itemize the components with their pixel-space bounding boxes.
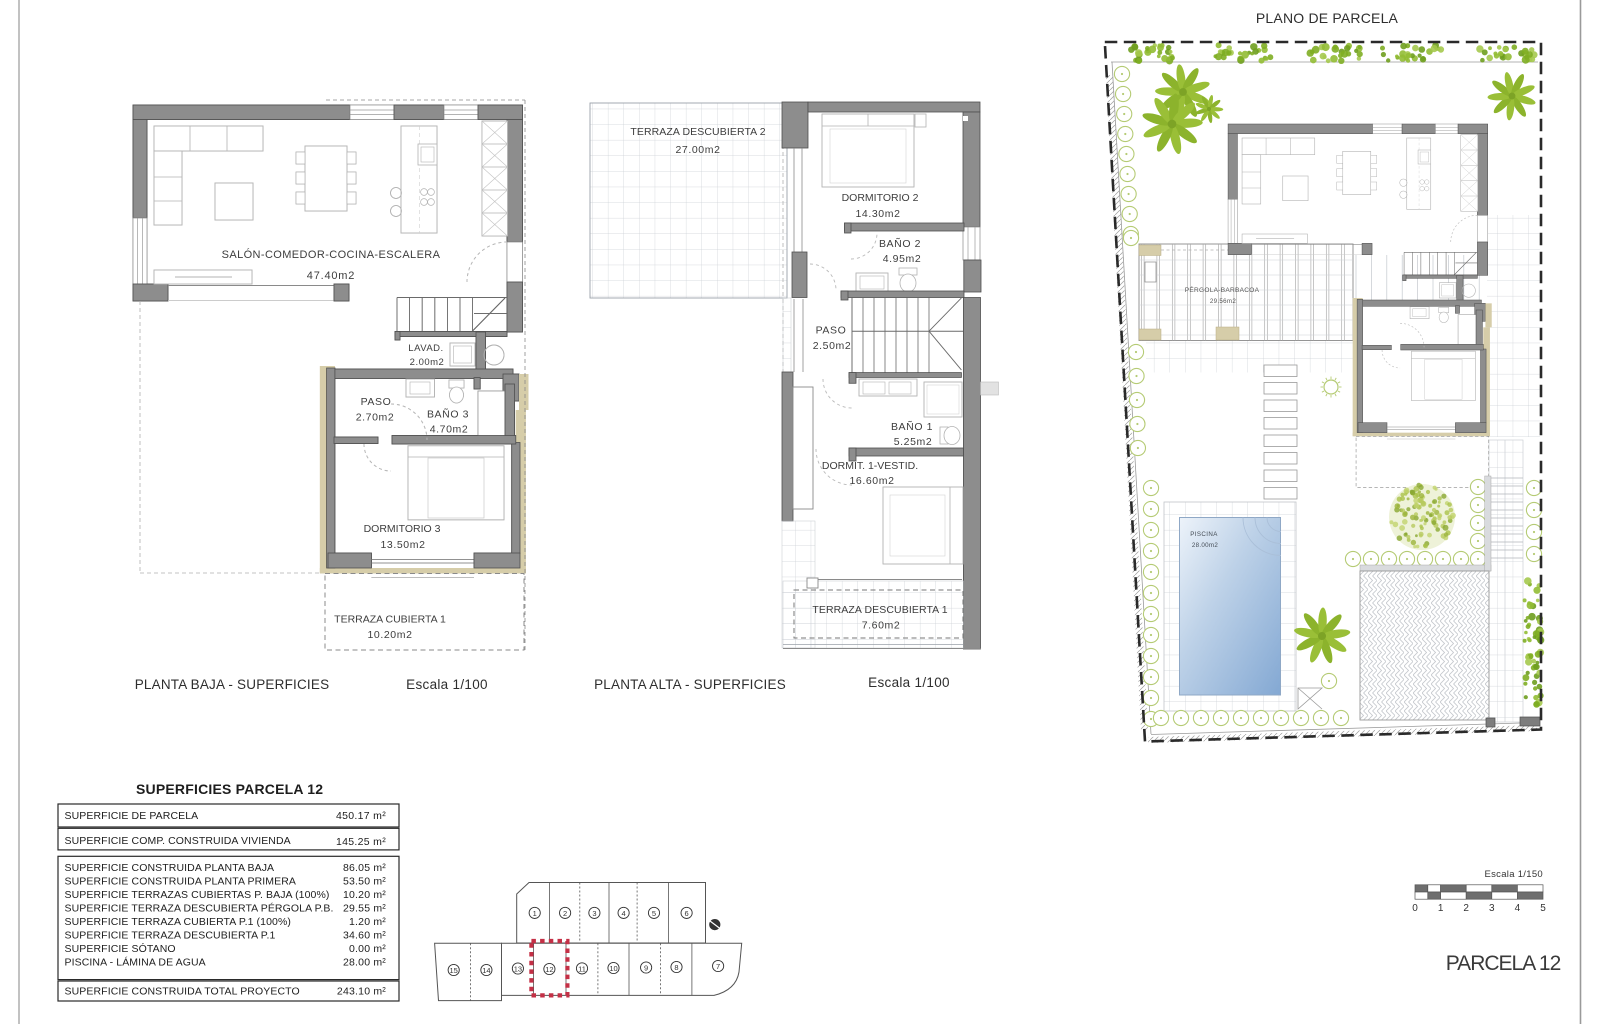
svg-text:PASO: PASO <box>361 396 392 408</box>
svg-text:SUPERFICIE CONSTRUIDA PLANTA B: SUPERFICIE CONSTRUIDA PLANTA BAJA <box>65 862 275 874</box>
svg-text:7: 7 <box>716 962 720 971</box>
svg-text:5: 5 <box>652 909 656 918</box>
svg-text:SUPERFICIE CONSTRUIDA TOTAL PR: SUPERFICIE CONSTRUIDA TOTAL PROYECTO <box>65 986 300 998</box>
svg-text:BAÑO 1: BAÑO 1 <box>891 420 933 433</box>
svg-text:2: 2 <box>563 909 567 918</box>
svg-text:2: 2 <box>1463 903 1469 914</box>
svg-text:1: 1 <box>533 909 537 918</box>
svg-text:SUPERFICIE TERRAZA DESCUBIERTA: SUPERFICIE TERRAZA DESCUBIERTA P.1 <box>65 930 276 942</box>
svg-text:0.00 m²: 0.00 m² <box>349 943 386 955</box>
svg-text:243.10 m²: 243.10 m² <box>337 986 386 998</box>
svg-text:PISCINA: PISCINA <box>1190 531 1218 538</box>
svg-text:DORMITORIO 2: DORMITORIO 2 <box>842 192 919 204</box>
svg-text:145.25 m²: 145.25 m² <box>336 836 386 848</box>
svg-text:10.20 m²: 10.20 m² <box>343 889 386 901</box>
svg-text:28.00 m²: 28.00 m² <box>343 957 386 969</box>
svg-text:SUPERFICIE TERRAZA CUBIERTA P.: SUPERFICIE TERRAZA CUBIERTA P.1 (100%) <box>65 916 292 928</box>
svg-text:86.05 m²: 86.05 m² <box>343 862 386 874</box>
svg-text:1.20 m²: 1.20 m² <box>349 916 386 928</box>
svg-text:4.95m2: 4.95m2 <box>883 253 922 265</box>
svg-text:0: 0 <box>1412 903 1418 914</box>
svg-text:BAÑO 2: BAÑO 2 <box>879 237 921 250</box>
svg-text:PISCINA - LÁMINA DE AGUA: PISCINA - LÁMINA DE AGUA <box>65 956 206 969</box>
svg-text:2.50m2: 2.50m2 <box>813 340 852 352</box>
svg-text:SUPERFICIE DE PARCELA: SUPERFICIE DE PARCELA <box>65 810 199 822</box>
svg-text:6: 6 <box>685 909 689 918</box>
svg-text:7.60m2: 7.60m2 <box>862 620 901 632</box>
svg-text:BAÑO 3: BAÑO 3 <box>427 408 469 421</box>
svg-text:11: 11 <box>578 964 586 973</box>
svg-text:8: 8 <box>674 963 678 972</box>
svg-text:PÉRGOLA-BARBACOA: PÉRGOLA-BARBACOA <box>1185 285 1260 294</box>
svg-text:SUPERFICIES PARCELA 12: SUPERFICIES PARCELA 12 <box>136 781 323 797</box>
svg-text:PLANTA ALTA - SUPERFICIES: PLANTA ALTA - SUPERFICIES <box>594 677 786 692</box>
svg-text:SALÓN-COMEDOR-COCINA-ESCALERA: SALÓN-COMEDOR-COCINA-ESCALERA <box>222 248 441 261</box>
svg-text:28.00m2: 28.00m2 <box>1192 542 1218 549</box>
svg-text:13.50m2: 13.50m2 <box>380 539 425 551</box>
svg-text:3: 3 <box>1489 903 1495 914</box>
svg-text:14: 14 <box>482 966 490 975</box>
svg-text:53.50 m²: 53.50 m² <box>343 876 386 888</box>
svg-text:5.25m2: 5.25m2 <box>894 436 933 448</box>
svg-text:5: 5 <box>1540 903 1546 914</box>
svg-text:3: 3 <box>592 909 596 918</box>
svg-text:4.70m2: 4.70m2 <box>430 424 469 436</box>
svg-text:47.40m2: 47.40m2 <box>307 270 355 282</box>
svg-text:PLANO DE PARCELA: PLANO DE PARCELA <box>1256 10 1399 26</box>
svg-text:TERRAZA DESCUBIERTA 1: TERRAZA DESCUBIERTA 1 <box>812 604 947 616</box>
svg-text:2.00m2: 2.00m2 <box>410 357 445 368</box>
svg-text:29.55 m²: 29.55 m² <box>343 903 386 915</box>
svg-text:9: 9 <box>644 964 648 973</box>
svg-text:13: 13 <box>514 965 522 974</box>
svg-text:PASO: PASO <box>816 325 847 337</box>
svg-text:TERRAZA DESCUBIERTA 2: TERRAZA DESCUBIERTA 2 <box>630 126 765 138</box>
svg-text:4: 4 <box>622 909 626 918</box>
svg-text:27.00m2: 27.00m2 <box>675 144 720 156</box>
svg-text:4: 4 <box>1515 903 1521 914</box>
svg-text:14.30m2: 14.30m2 <box>855 208 900 220</box>
svg-text:DORMIT. 1-VESTID.: DORMIT. 1-VESTID. <box>822 460 918 472</box>
svg-text:10.20m2: 10.20m2 <box>367 629 412 641</box>
svg-text:16.60m2: 16.60m2 <box>849 475 894 487</box>
svg-text:SUPERFICIE CONSTRUIDA PLANTA P: SUPERFICIE CONSTRUIDA PLANTA PRIMERA <box>65 876 297 888</box>
svg-text:PLANTA BAJA - SUPERFICIES: PLANTA BAJA - SUPERFICIES <box>135 677 330 692</box>
svg-text:SUPERFICIE TERRAZA DESCUBIERTA: SUPERFICIE TERRAZA DESCUBIERTA PÉRGOLA P… <box>65 902 334 915</box>
svg-text:DORMITORIO 3: DORMITORIO 3 <box>364 523 441 535</box>
svg-text:10: 10 <box>609 964 617 973</box>
svg-text:TERRAZA CUBIERTA 1: TERRAZA CUBIERTA 1 <box>334 614 446 626</box>
svg-text:12: 12 <box>545 965 553 974</box>
svg-text:450.17 m²: 450.17 m² <box>336 810 386 822</box>
svg-text:SUPERFICIE SÓTANO: SUPERFICIE SÓTANO <box>65 942 176 955</box>
svg-text:PARCELA 12: PARCELA 12 <box>1446 952 1561 975</box>
svg-text:2.70m2: 2.70m2 <box>356 412 395 424</box>
svg-text:SUPERFICIE TERRAZAS CUBIERTAS: SUPERFICIE TERRAZAS CUBIERTAS P. BAJA (1… <box>65 889 330 901</box>
svg-text:34.60 m²: 34.60 m² <box>343 930 386 942</box>
svg-text:Escala 1/150: Escala 1/150 <box>1484 869 1543 880</box>
svg-text:LAVAD.: LAVAD. <box>408 343 443 354</box>
svg-text:Escala 1/100: Escala 1/100 <box>406 677 488 692</box>
svg-text:Escala 1/100: Escala 1/100 <box>868 675 950 690</box>
svg-text:29.56m2: 29.56m2 <box>1210 298 1236 305</box>
svg-text:15: 15 <box>450 966 458 975</box>
svg-text:1: 1 <box>1438 903 1444 914</box>
svg-text:SUPERFICIE COMP. CONSTRUIDA VI: SUPERFICIE COMP. CONSTRUIDA VIVIENDA <box>65 835 291 847</box>
